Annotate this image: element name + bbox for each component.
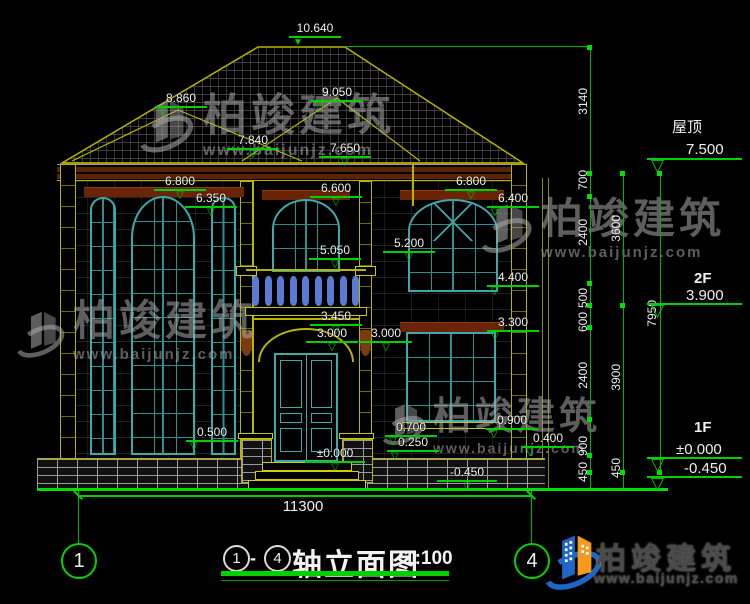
corbel-ornament	[241, 330, 252, 356]
dim-win-right-mid: 5.200	[383, 237, 435, 263]
dim-ground-neg: -0.450	[437, 466, 497, 492]
center-pilaster-left	[240, 181, 253, 462]
brick-base-left	[37, 458, 251, 490]
roof-edge-stub	[412, 164, 414, 206]
level-triangle-icon	[651, 457, 664, 472]
baluster	[302, 276, 309, 306]
level-1f-neg: -0.450	[684, 460, 727, 477]
tall-arched-window	[211, 197, 236, 455]
right-first-floor-window	[406, 332, 496, 422]
tall-arched-window	[131, 196, 195, 455]
dim-roof-left: 8.860	[155, 92, 207, 118]
title-dash: -	[250, 548, 256, 569]
chain-tick	[587, 417, 592, 422]
axis-bubble-1: 1	[61, 543, 97, 579]
chain-tick	[620, 303, 625, 308]
chain-b-450: 450	[609, 458, 623, 478]
pilaster-capital	[236, 266, 257, 276]
chain-tick	[587, 281, 592, 286]
level-triangle-icon	[651, 303, 664, 318]
level-triangle-icon	[651, 158, 664, 173]
level-1f-label: 1F	[694, 419, 712, 436]
level-roof-value: 7.500	[686, 141, 724, 158]
tall-arched-window	[90, 197, 116, 455]
chain-a-500: 500	[576, 288, 590, 308]
title-underline-thin	[221, 580, 449, 581]
axis-line-1	[78, 491, 79, 543]
baluster	[327, 276, 334, 306]
dim-total-width: 11300	[273, 498, 333, 515]
hip-roof	[50, 38, 535, 170]
dim-door-head-right: 3.000	[360, 327, 412, 353]
chain-tick	[620, 171, 625, 176]
dim-roof-low-mid: 7.650	[319, 142, 371, 168]
brand-url: www.baijunjz.com	[594, 570, 739, 586]
dim-chain-a	[590, 47, 591, 489]
chain-a-2400b: 2400	[576, 362, 590, 389]
chain-a-600: 600	[576, 312, 590, 332]
dim-porch-lower: 0.250	[387, 436, 439, 462]
baluster	[315, 276, 322, 306]
width-dim-line	[78, 495, 531, 497]
pier-cap	[339, 433, 374, 439]
dim-win-center: 6.600	[310, 182, 362, 208]
title-underline-thick	[221, 571, 449, 576]
baluster	[340, 276, 347, 306]
chain-tick	[587, 45, 592, 50]
pier-cap	[238, 433, 273, 439]
window-diagonal-mullions	[412, 203, 494, 241]
level-triangle-icon	[651, 476, 664, 491]
axis-line-4	[531, 491, 532, 543]
chain-tick	[587, 194, 592, 199]
dim-roof-mid: 9.050	[311, 86, 363, 112]
corner-pilaster-left	[60, 164, 76, 464]
baluster	[265, 276, 272, 306]
dim-chain-b	[623, 173, 624, 489]
dim-base-left: 0.500	[186, 426, 238, 452]
drawing-scale: 1:100	[404, 548, 453, 570]
door-leaf	[307, 355, 337, 460]
baluster	[352, 276, 359, 306]
dim-chain-c	[660, 173, 661, 472]
dim-balcony-top: 5.050	[309, 244, 361, 270]
title-axis-bubble-4: 4	[264, 545, 291, 572]
dim-door-head-left: 3.000	[306, 327, 358, 353]
dim-band-right: 3.300	[487, 316, 539, 342]
baluster	[290, 276, 297, 306]
chain-a-900: 900	[576, 436, 590, 456]
chain-a-2400: 2400	[576, 219, 590, 246]
chain-a-450: 450	[576, 462, 590, 482]
dim-roof-low-left: 7.840	[227, 134, 279, 160]
level-roof-label: 屋顶	[672, 116, 702, 137]
dim-spout: 0.400	[522, 432, 574, 458]
title-axis-bubble-1: 1	[223, 545, 250, 572]
level-2f-label: 2F	[694, 270, 712, 287]
dim-top-ridge: 10.640	[289, 22, 341, 48]
level-1f-zero: ±0.000	[676, 441, 722, 458]
chain-b-3900: 3900	[609, 364, 623, 391]
dim-floor-zero: ±0.000	[305, 447, 365, 473]
baluster	[252, 276, 259, 306]
chain-a-700: 700	[576, 170, 590, 190]
ridge-extension-line	[346, 46, 591, 47]
drawing-title: 轴立面图	[292, 540, 420, 584]
level-2f-value: 3.900	[686, 287, 724, 304]
dim-win-left: 6.350	[185, 192, 237, 218]
chain-a-3140: 3140	[576, 88, 590, 115]
door-leaf	[276, 355, 307, 460]
dim-win-right-sill: 4.400	[487, 271, 539, 297]
ground-line	[37, 488, 668, 491]
baluster	[277, 276, 284, 306]
cad-elevation-drawing: 10.640 8.860 9.050 7.840 7.650 6.800 6.3…	[0, 0, 750, 604]
dim-win-right-head: 6.400	[487, 192, 539, 218]
chain-b-3600: 3600	[609, 215, 623, 242]
